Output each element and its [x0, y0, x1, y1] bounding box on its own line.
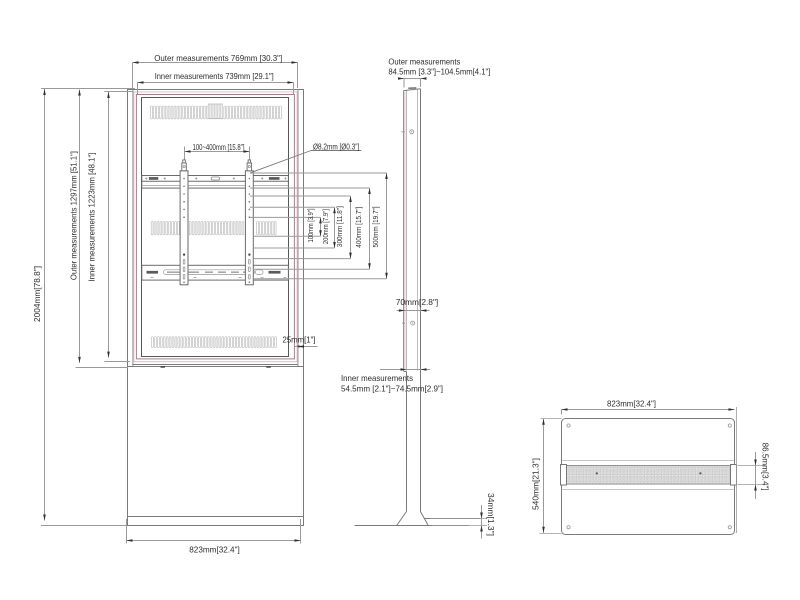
svg-text:823mm[32.4"]: 823mm[32.4"] [607, 399, 656, 409]
svg-text:Outer measurements 1297mm [51: Outer measurements 1297mm [51.1"] [68, 151, 78, 280]
svg-text:Inner measurements 739mm [29.1: Inner measurements 739mm [29.1"] [155, 71, 274, 81]
svg-text:34mm[1.3"]: 34mm[1.3"] [486, 493, 496, 536]
svg-text:2004mm[78.8"]: 2004mm[78.8"] [32, 266, 42, 322]
svg-text:70mm[2.8"]: 70mm[2.8"] [396, 297, 439, 307]
svg-text:Outer measurements 769mm [30.3: Outer measurements 769mm [30.3"] [154, 53, 282, 63]
svg-text:Inner measurements 1223mm [48: Inner measurements 1223mm [48.1"] [87, 153, 97, 282]
svg-text:Inner measurements: Inner measurements [341, 373, 413, 383]
svg-text:54.5mm [2.1"]~74.5mm[2.9"]: 54.5mm [2.1"]~74.5mm[2.9"] [341, 383, 443, 393]
svg-text:823mm[32.4"]: 823mm[32.4"] [189, 545, 240, 555]
svg-text:400mm [15.7"]: 400mm [15.7"] [354, 207, 363, 248]
svg-text:540mm[21.3"]: 540mm[21.3"] [531, 458, 541, 510]
svg-text:84.5mm [3.3"]~104.5mm[4.1"]: 84.5mm [3.3"]~104.5mm[4.1"] [388, 66, 490, 76]
svg-text:86.5mm[3.4"]: 86.5mm[3.4"] [761, 443, 771, 491]
svg-text:500mm [19.7"]: 500mm [19.7"] [371, 207, 380, 248]
svg-text:Ø8.2mm [Ø0.3"]: Ø8.2mm [Ø0.3"] [313, 142, 359, 151]
svg-text:100mm [3.9"]: 100mm [3.9"] [306, 209, 315, 243]
svg-text:Outer measurements: Outer measurements [388, 57, 460, 67]
svg-text:300mm [11.8"]: 300mm [11.8"] [335, 206, 344, 247]
svg-text:100~400mm [15.8"]: 100~400mm [15.8"] [193, 143, 245, 152]
svg-text:25mm[1"]: 25mm[1"] [283, 335, 316, 345]
svg-text:200mm [7.9"]: 200mm [7.9"] [321, 209, 330, 244]
